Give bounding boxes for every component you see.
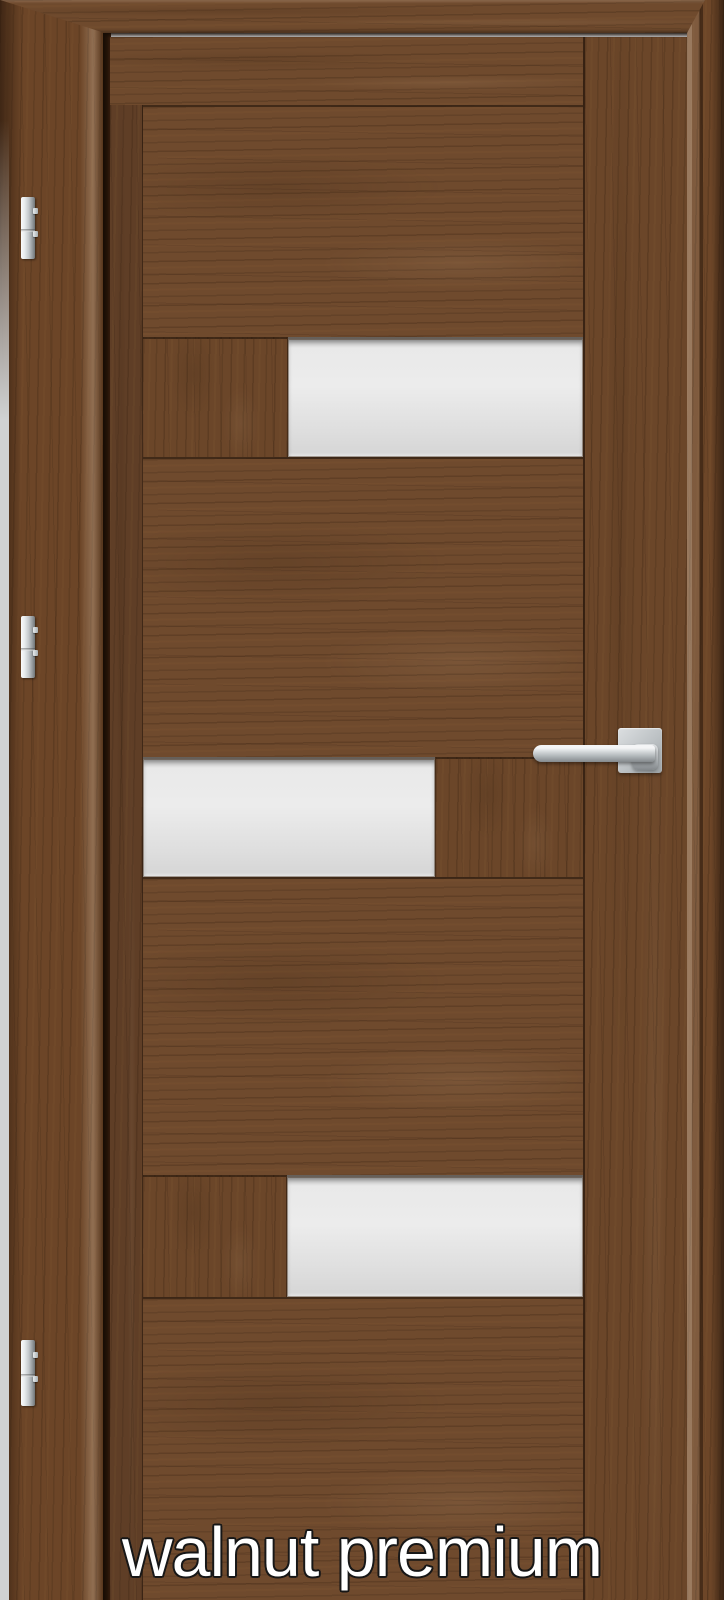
lever-handle-icon <box>533 745 655 762</box>
hinge-bottom-icon <box>21 1340 35 1406</box>
door-top-rail <box>110 37 583 105</box>
hinge-pin <box>33 208 38 214</box>
hinge-middle-icon <box>21 616 35 678</box>
door-top-edge-shadow <box>103 33 687 38</box>
hinge-pin <box>33 650 38 656</box>
glass-row-1-wood-block <box>143 337 288 457</box>
door-frame-right-jamb <box>687 0 724 1600</box>
door-frame-left-jamb <box>0 0 105 1600</box>
glass-pane-3 <box>287 1175 583 1297</box>
product-caption: walnut premium <box>122 1512 602 1592</box>
door-leaf <box>110 37 687 1600</box>
hinge-pin <box>33 1376 38 1382</box>
hinge-pin <box>33 1352 38 1358</box>
hinge-pin <box>33 627 38 633</box>
background-strip-left <box>0 0 9 1600</box>
door-product-image: walnut premium <box>0 0 724 1600</box>
door-panel-band-3 <box>143 877 583 1175</box>
door-panel-band-2 <box>143 457 583 757</box>
hinge-top-icon <box>21 197 35 259</box>
door-panel-band-1 <box>143 105 583 337</box>
glass-row-3-wood-block <box>143 1175 287 1297</box>
door-right-stile <box>583 37 687 1600</box>
door-frame-header <box>0 0 724 33</box>
glass-pane-1 <box>288 337 583 457</box>
glass-pane-2 <box>143 757 435 877</box>
glass-row-2-wood-block <box>435 757 583 877</box>
door-left-stile <box>110 105 143 1600</box>
hinge-pin <box>33 231 38 237</box>
